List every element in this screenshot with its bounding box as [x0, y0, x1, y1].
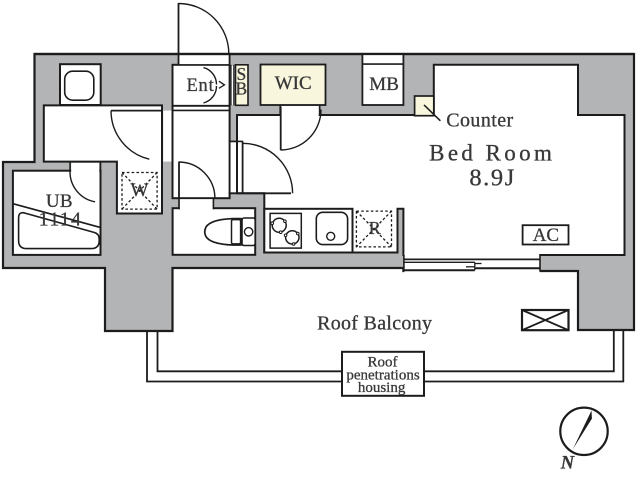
svg-text:W: W: [131, 180, 149, 201]
svg-text:Bed Room: Bed Room: [429, 141, 555, 166]
svg-text:Roof Balcony: Roof Balcony: [317, 312, 432, 334]
svg-text:WIC: WIC: [275, 73, 312, 94]
svg-text:Ent: Ent: [186, 76, 214, 96]
svg-text:B: B: [236, 79, 248, 99]
svg-text:1114: 1114: [39, 209, 83, 231]
svg-text:8.9J: 8.9J: [469, 165, 516, 192]
svg-text:housing: housing: [358, 380, 406, 396]
svg-text:MB: MB: [369, 74, 399, 95]
svg-text:AC: AC: [533, 225, 559, 246]
svg-text:Counter: Counter: [446, 109, 513, 131]
svg-text:N: N: [560, 453, 575, 473]
svg-text:R: R: [369, 218, 381, 238]
